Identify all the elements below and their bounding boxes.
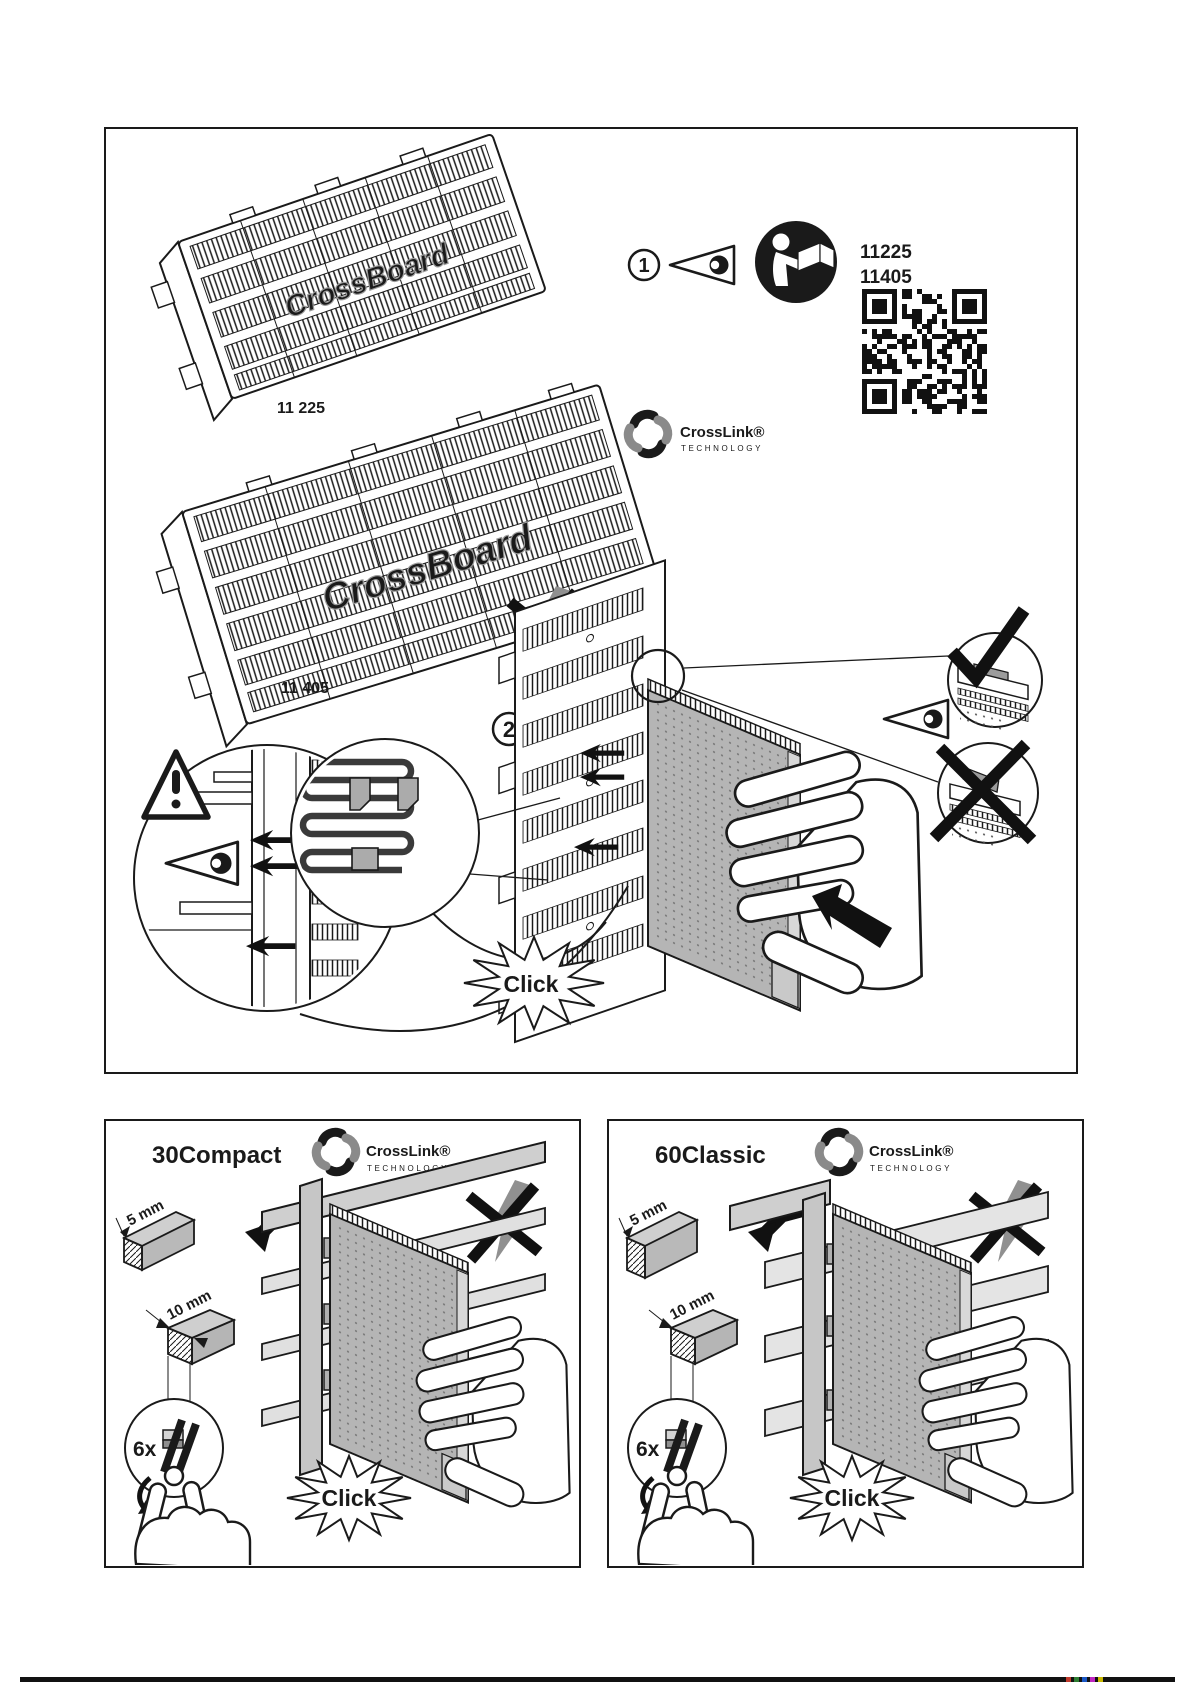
step-number-2: 2 <box>503 717 515 742</box>
logo-subtext: TECHNOLOGY <box>870 1164 952 1173</box>
click-label: Click <box>825 1485 880 1511</box>
logo-text: CrossLink® <box>366 1143 450 1160</box>
block-label-11405: 11 405 <box>281 680 329 697</box>
click-label: Click <box>322 1485 377 1511</box>
click-label: Click <box>504 971 559 997</box>
panel-title: 30Compact <box>152 1142 281 1169</box>
read-manual-icon <box>755 221 837 303</box>
product-code-1: 11225 <box>860 242 912 263</box>
logo-text: CrossLink® <box>680 424 764 441</box>
repeat-count-label: 6x <box>133 1438 157 1461</box>
product-code-2: 11405 <box>860 267 912 288</box>
footer-print-bar <box>20 1677 1175 1682</box>
instruction-sheet-page: CrossBoard 11 225 Cros <box>0 0 1192 1685</box>
step-number-1: 1 <box>638 255 649 277</box>
logo-subtext: TECHNOLOGY <box>681 444 763 453</box>
repeat-count-label: 6x <box>636 1438 660 1461</box>
logo-text: CrossLink® <box>869 1143 953 1160</box>
panel-title: 60Classic <box>655 1142 766 1169</box>
qr-code <box>858 285 991 418</box>
block-label-11225: 11 225 <box>277 400 325 417</box>
